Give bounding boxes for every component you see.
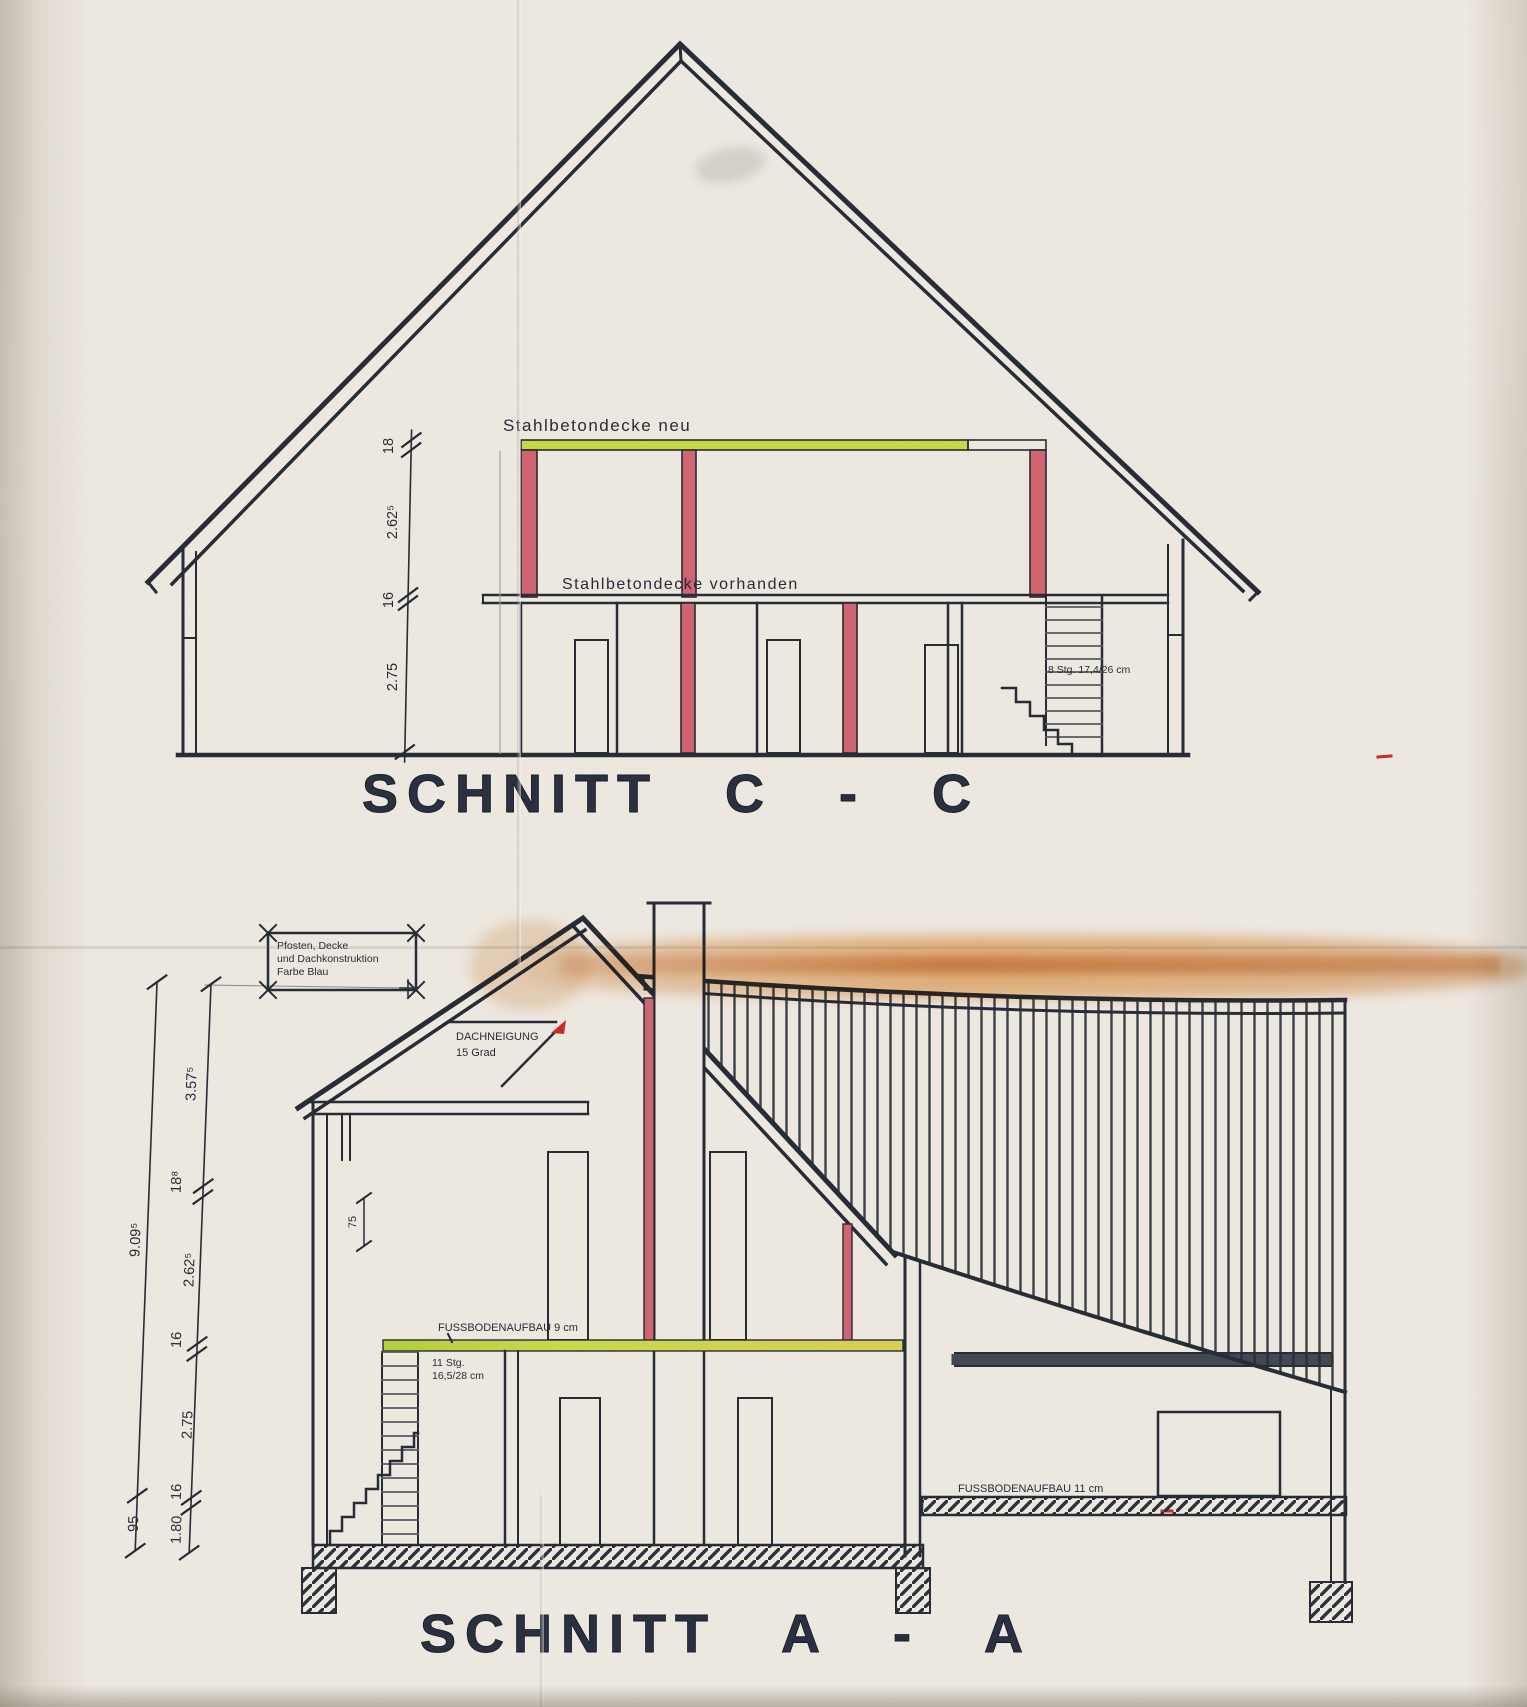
schnitt-a-drawing: Pfosten, Decke und Dachkonstruktion Farb… — [126, 903, 1352, 1664]
dim-c-16: 16 — [381, 592, 397, 608]
schnitt-c-title: SCHNITT C - C — [362, 764, 980, 824]
label-stairs-c: 8 Stg. 17,4/26 cm — [1048, 664, 1131, 676]
section-drawings: 18 2.62⁵ 16 2.75 Stahlbetondecke neu Sta… — [0, 0, 1527, 1707]
eave-collar — [311, 1102, 588, 1160]
note-line-1: Pfosten, Decke — [277, 940, 348, 952]
dim-a-275: 2.75 — [180, 1410, 197, 1439]
label-floor-lower: FUSSBODENAUFBAU 11 cm — [958, 1483, 1103, 1495]
scanned-blueprint-page: 18 2.62⁵ 16 2.75 Stahlbetondecke neu Sta… — [0, 0, 1527, 1707]
label-floor-upper: FUSSBODENAUFBAU 9 cm — [438, 1322, 578, 1334]
label-deck-new: Stahlbetondecke neu — [503, 416, 691, 435]
barn-roof — [637, 976, 1345, 1392]
chimney — [648, 903, 710, 1545]
dim-a-180: 1.80 — [169, 1515, 186, 1544]
roof-c — [148, 44, 1258, 600]
ridge-reference — [205, 980, 416, 996]
doors-c — [575, 640, 958, 753]
label-stairs-a1: 11 Stg. — [432, 1357, 465, 1369]
red-speck — [1378, 756, 1391, 757]
dim-a-16b: 16 — [169, 1484, 186, 1501]
dim-c-262: 2.62⁵ — [385, 505, 401, 539]
label-deck-existing: Stahlbetondecke vorhanden — [562, 576, 799, 593]
note-line-2: und Dachkonstruktion — [277, 953, 379, 965]
existing-concrete-deck — [483, 452, 1168, 753]
roof-pitch-note: DACHNEIGUNG 15 Grad — [448, 1020, 566, 1086]
dim-c-275: 2.75 — [385, 663, 401, 691]
barn-opening — [1158, 1412, 1280, 1496]
attic-floor — [383, 1334, 903, 1351]
dimension-chains-a — [126, 975, 220, 1560]
dim-c-18: 18 — [381, 438, 397, 454]
pitch-label-1: DACHNEIGUNG — [456, 1031, 539, 1043]
dimension-chain-c — [396, 430, 421, 762]
dim-a-95: 95 — [126, 1516, 143, 1533]
pitch-label-2: 15 Grad — [456, 1047, 496, 1059]
new-concrete-deck — [521, 440, 1046, 450]
dimension-labels-a: 9.09⁵ 95 3.57⁵ 18⁸ 2.62⁵ 16 2.75 16 1.80 — [126, 1066, 201, 1544]
schnitt-c-drawing: 18 2.62⁵ 16 2.75 Stahlbetondecke neu Sta… — [148, 44, 1391, 824]
schnitt-a-title: SCHNITT A - A — [420, 1604, 1032, 1664]
upper-columns-red — [521, 450, 1046, 597]
dim-a-188: 18⁸ — [169, 1170, 186, 1193]
barn-loft-beam — [955, 1353, 1331, 1366]
dim-a-262: 2.62⁵ — [181, 1252, 198, 1287]
entrance-stairs — [330, 1352, 418, 1545]
level-dim-label: 75 — [347, 1216, 359, 1228]
staircase-c — [1002, 597, 1102, 755]
ground-floor-walls-a — [505, 1351, 772, 1545]
note-line-3: Farbe Blau — [277, 966, 329, 978]
label-stairs-a2: 16,5/28 cm — [432, 1370, 484, 1382]
level-dim-75: 75 — [347, 1193, 371, 1251]
dim-a-total: 9.09⁵ — [127, 1222, 144, 1257]
dim-a-357: 3.57⁵ — [183, 1066, 200, 1101]
dim-a-16a: 16 — [169, 1332, 186, 1349]
dimension-labels-c: 18 2.62⁵ 16 2.75 — [381, 438, 401, 691]
ground-floor-walls-c — [521, 603, 962, 755]
